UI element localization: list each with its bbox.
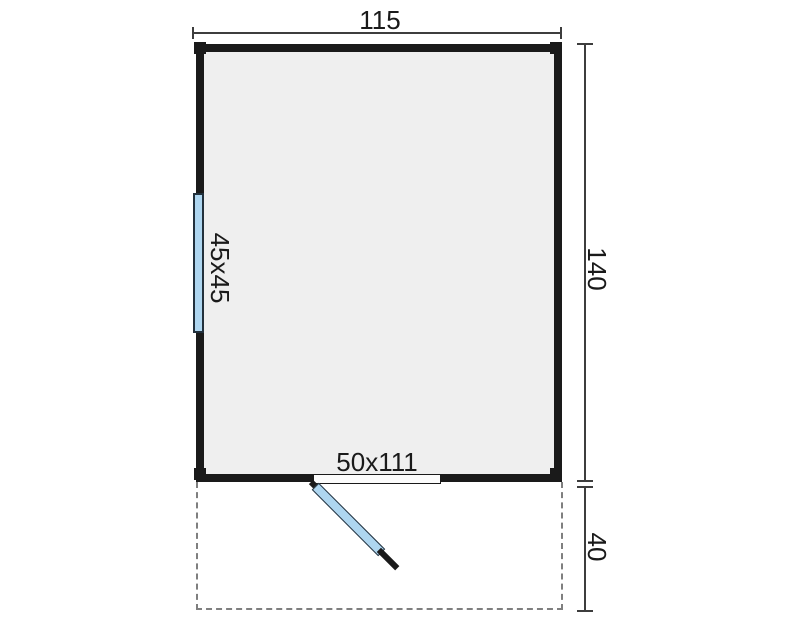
door-size-label: 50x111 bbox=[336, 449, 417, 475]
corner-post-top-left bbox=[194, 42, 206, 54]
porch-dimension-tick-bottom bbox=[577, 610, 593, 612]
height-dimension-label: 140 bbox=[584, 247, 610, 290]
width-dimension-label: 115 bbox=[359, 7, 400, 33]
corner-post-top-right bbox=[550, 42, 562, 54]
top-dimension-tick-left bbox=[192, 27, 194, 39]
top-dimension-tick-right bbox=[560, 27, 562, 39]
right-dimension-tick-bottom bbox=[577, 480, 593, 482]
porch-depth-dimension-label: 40 bbox=[584, 533, 610, 562]
porch-dimension-tick-top bbox=[577, 486, 593, 488]
corner-post-bottom-right bbox=[550, 468, 562, 480]
right-dimension-tick-top bbox=[577, 43, 593, 45]
door-opening bbox=[313, 474, 441, 484]
floorplan-canvas: 115 140 40 45x45 50x111 bbox=[0, 0, 800, 622]
corner-post-bottom-left bbox=[194, 468, 206, 480]
building-outline bbox=[196, 44, 562, 482]
left-wall-window bbox=[193, 193, 204, 333]
window-size-label: 45x45 bbox=[207, 233, 233, 304]
